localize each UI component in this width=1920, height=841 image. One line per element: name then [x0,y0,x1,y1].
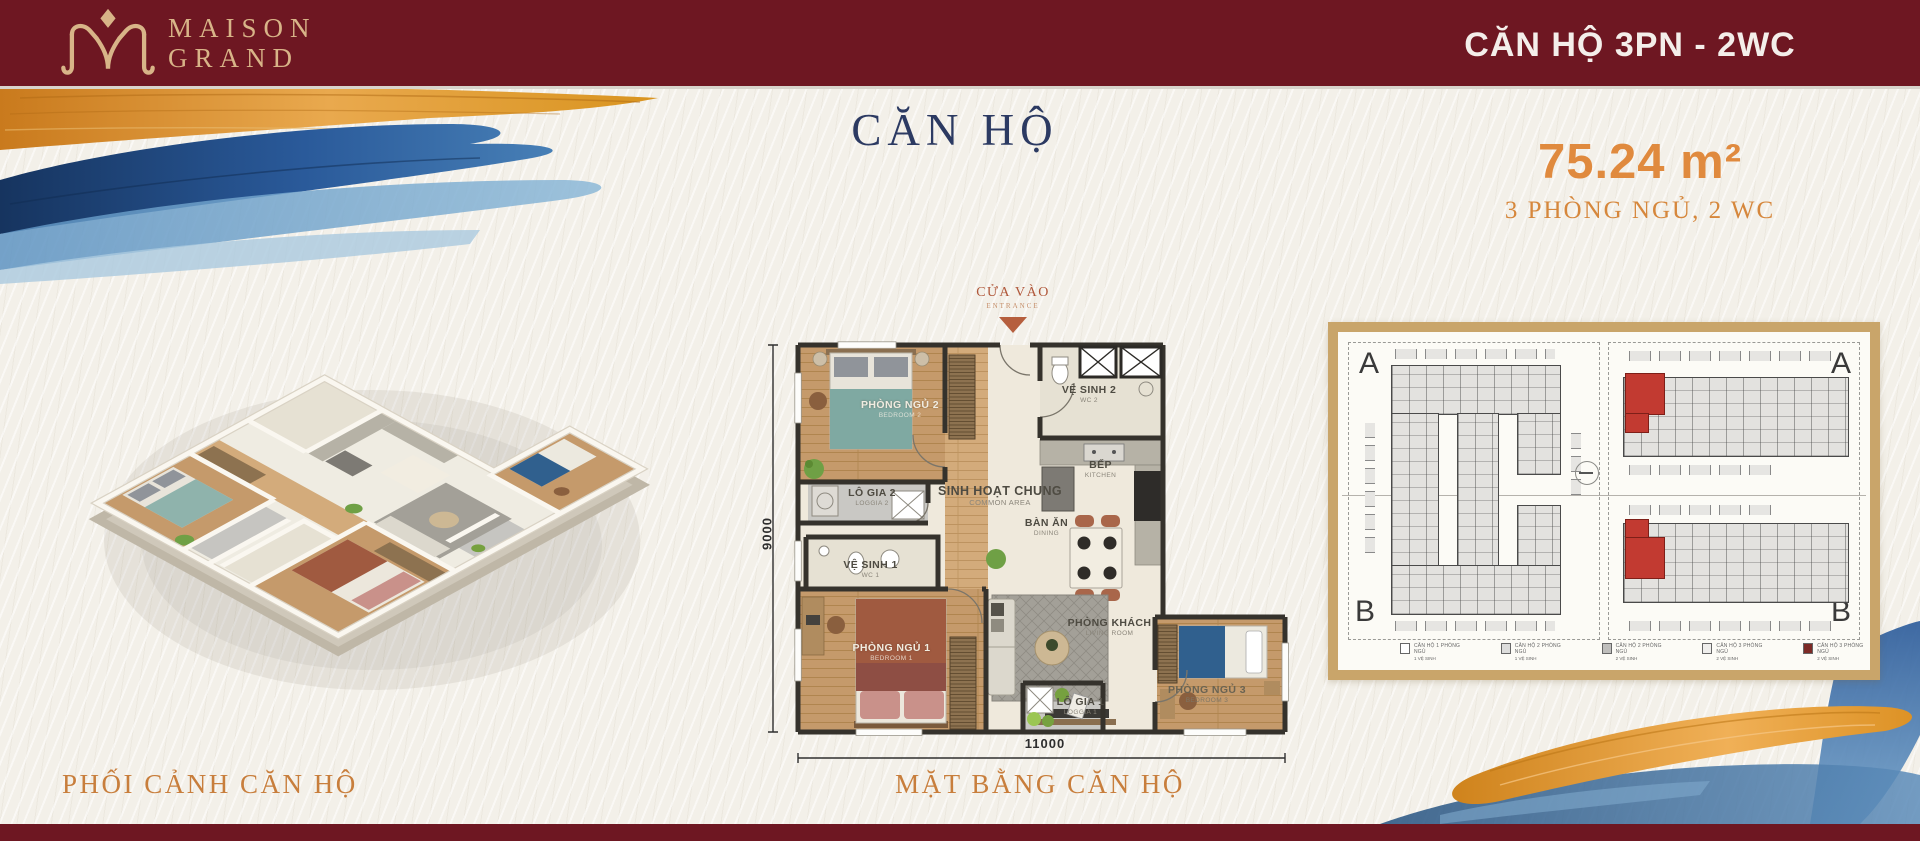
highlighted-unit-marker-a [1625,373,1665,415]
north-arrow-icon [1575,461,1599,485]
legend-item: CĂN HỘ 3 PHÒNG NGỦ2 VỆ SINH [1702,643,1769,661]
key-plan-panel: A B A B [1328,322,1880,680]
legend-swatch-icon [1702,643,1712,654]
entrance-label: CỬA VÀO ENTRANCE [950,285,1076,310]
page-title: CĂN HỘ [845,104,1065,156]
elevator-shafts [1080,347,1161,377]
floor-plan-drawing [763,285,1308,775]
footer-bar [0,824,1920,841]
dimension-height-label: 9000 [760,504,775,564]
legend-swatch-icon [1400,643,1410,654]
entrance-arrow-icon [999,317,1027,333]
entrance-label-en: ENTRANCE [950,302,1076,310]
legend-swatch-icon [1803,643,1813,654]
highlighted-unit-marker-b [1625,537,1665,579]
floor-plan-caption: MẶT BẰNG CĂN HỘ [895,769,1185,800]
perspective-caption: PHỐI CẢNH CĂN HỘ [62,769,358,800]
brand-logo: MAISON GRAND [168,13,317,73]
key-plan-block-right: A B [1608,342,1860,640]
legend-swatch-icon [1501,643,1511,654]
apartment-3d-view [60,230,680,755]
entrance-label-vn: CỬA VÀO [950,285,1076,301]
area-value: 75.24 m² [1495,134,1785,190]
maison-grand-monogram-icon [58,6,158,82]
block-a-left-label: A [1359,347,1379,381]
header-bar: MAISON GRAND CĂN HỘ 3PN - 2WC [0,0,1920,89]
legend-item: CĂN HỘ 3 PHÒNG NGỦ2 VỆ SINH [1803,643,1870,661]
block-b-left-label: B [1355,595,1375,629]
legend-item: CĂN HỘ 1 PHÒNG NGỦ1 VỆ SINH [1400,643,1467,661]
brand-name-line1: MAISON [168,13,317,43]
area-info: 75.24 m² 3 PHÒNG NGỦ, 2 WC [1495,134,1785,225]
brand-name-line2: GRAND [168,43,317,73]
dimension-width-label: 11000 [1015,736,1075,751]
key-plan-block-left: A B [1348,342,1600,640]
legend-item: CĂN HỘ 2 PHÒNG NGỦ2 VỆ SINH [1602,643,1669,661]
header-unit-type: CĂN HỘ 3PN - 2WC [1455,26,1805,65]
area-detail: 3 PHÒNG NGỦ, 2 WC [1495,197,1785,225]
legend-swatch-icon [1602,643,1612,654]
page: MAISON GRAND CĂN HỘ 3PN - 2WC CĂN HỘ 75.… [0,0,1920,841]
unit-type-legend: CĂN HỘ 1 PHÒNG NGỦ1 VỆ SINH CĂN HỘ 2 PHÒ… [1400,643,1870,661]
legend-item: CĂN HỘ 2 PHÒNG NGỦ1 VỆ SINH [1501,643,1568,661]
